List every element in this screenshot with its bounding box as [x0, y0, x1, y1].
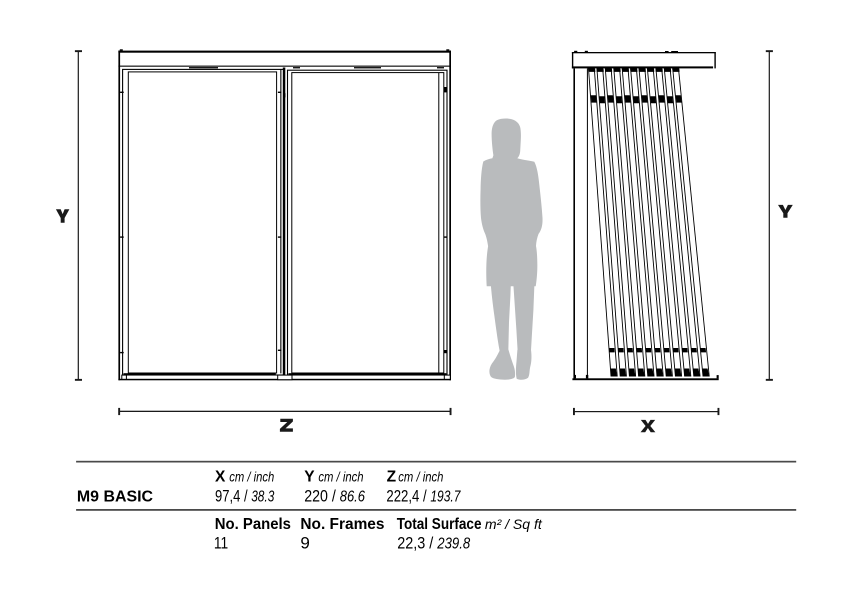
svg-text:11: 11: [214, 533, 228, 552]
svg-text:220 / 86.6: 220 / 86.6: [304, 486, 365, 505]
svg-text:Total Surface: Total Surface: [397, 516, 482, 533]
svg-text:97,4 / 38.3: 97,4 / 38.3: [215, 486, 275, 505]
svg-text:X: X: [215, 468, 226, 485]
svg-text:cm / inch: cm / inch: [229, 468, 274, 484]
svg-text:m² / Sq ft: m² / Sq ft: [485, 516, 543, 532]
svg-text:9: 9: [300, 533, 309, 552]
svg-text:No. Frames: No. Frames: [300, 516, 384, 533]
svg-text:Y: Y: [304, 468, 315, 485]
svg-text:Z: Z: [387, 468, 397, 485]
svg-text:cm / inch: cm / inch: [398, 468, 443, 484]
svg-text:222,4 / 193.7: 222,4 / 193.7: [386, 486, 461, 505]
svg-text:cm / inch: cm / inch: [318, 468, 363, 484]
svg-text:22,3 / 239.8: 22,3 / 239.8: [397, 533, 470, 552]
svg-text:No. Panels: No. Panels: [215, 516, 291, 533]
svg-text:M9 BASIC: M9 BASIC: [77, 488, 154, 505]
